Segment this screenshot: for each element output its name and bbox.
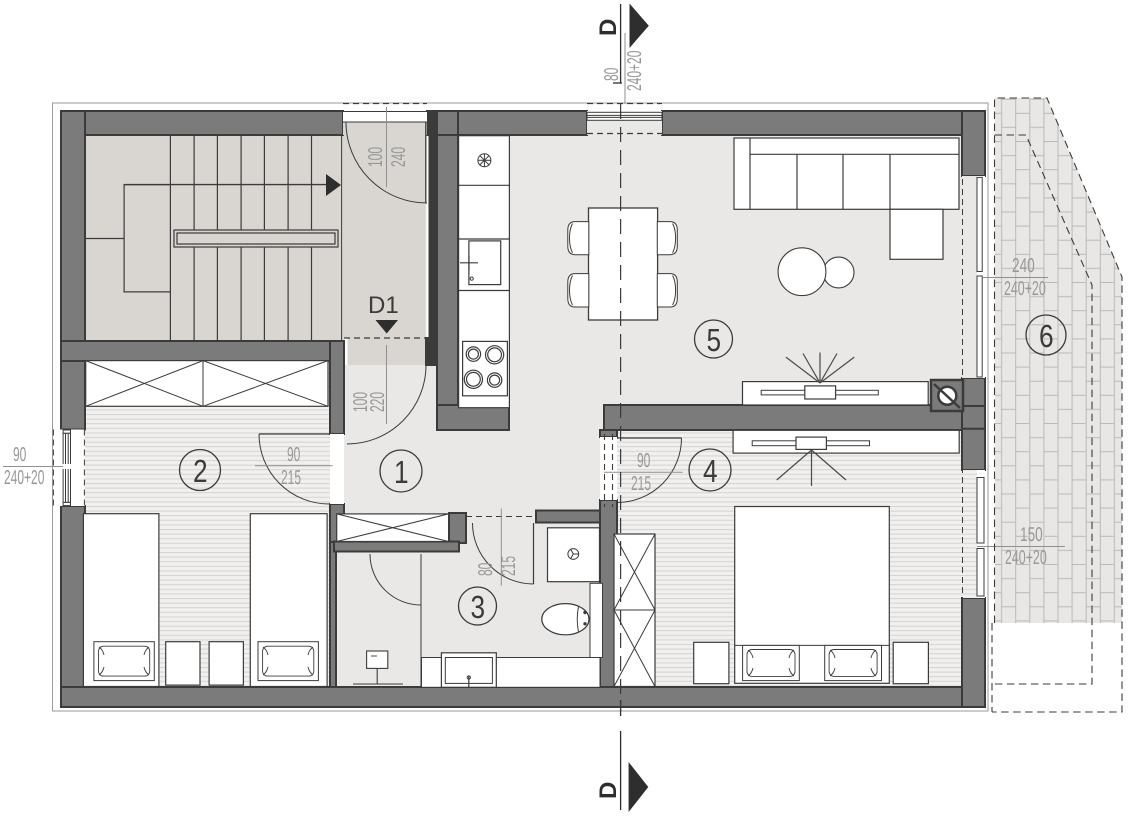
svg-text:D: D (595, 782, 622, 799)
svg-text:3: 3 (471, 589, 486, 625)
svg-text:90: 90 (287, 444, 300, 466)
svg-text:4: 4 (703, 453, 718, 489)
svg-text:240+20: 240+20 (1005, 547, 1047, 569)
svg-text:150: 150 (1020, 524, 1043, 546)
svg-text:100: 100 (365, 147, 387, 167)
svg-text:220: 220 (367, 392, 389, 412)
svg-text:215: 215 (498, 556, 520, 576)
svg-text:240+20: 240+20 (624, 51, 646, 91)
svg-text:6: 6 (1039, 318, 1054, 354)
svg-text:80: 80 (601, 68, 623, 81)
svg-text:240: 240 (1012, 255, 1035, 277)
svg-text:1: 1 (394, 454, 409, 490)
svg-text:215: 215 (281, 467, 301, 489)
svg-text:240+20: 240+20 (1004, 278, 1046, 300)
svg-text:240: 240 (388, 147, 410, 167)
svg-text:215: 215 (631, 473, 651, 495)
svg-text:240+20: 240+20 (4, 467, 44, 489)
svg-text:D: D (595, 19, 622, 36)
svg-text:90: 90 (13, 444, 26, 466)
svg-text:D1: D1 (368, 292, 399, 319)
svg-text:2: 2 (193, 453, 208, 489)
svg-text:80: 80 (475, 563, 497, 576)
svg-text:5: 5 (707, 322, 722, 358)
svg-text:90: 90 (637, 450, 650, 472)
